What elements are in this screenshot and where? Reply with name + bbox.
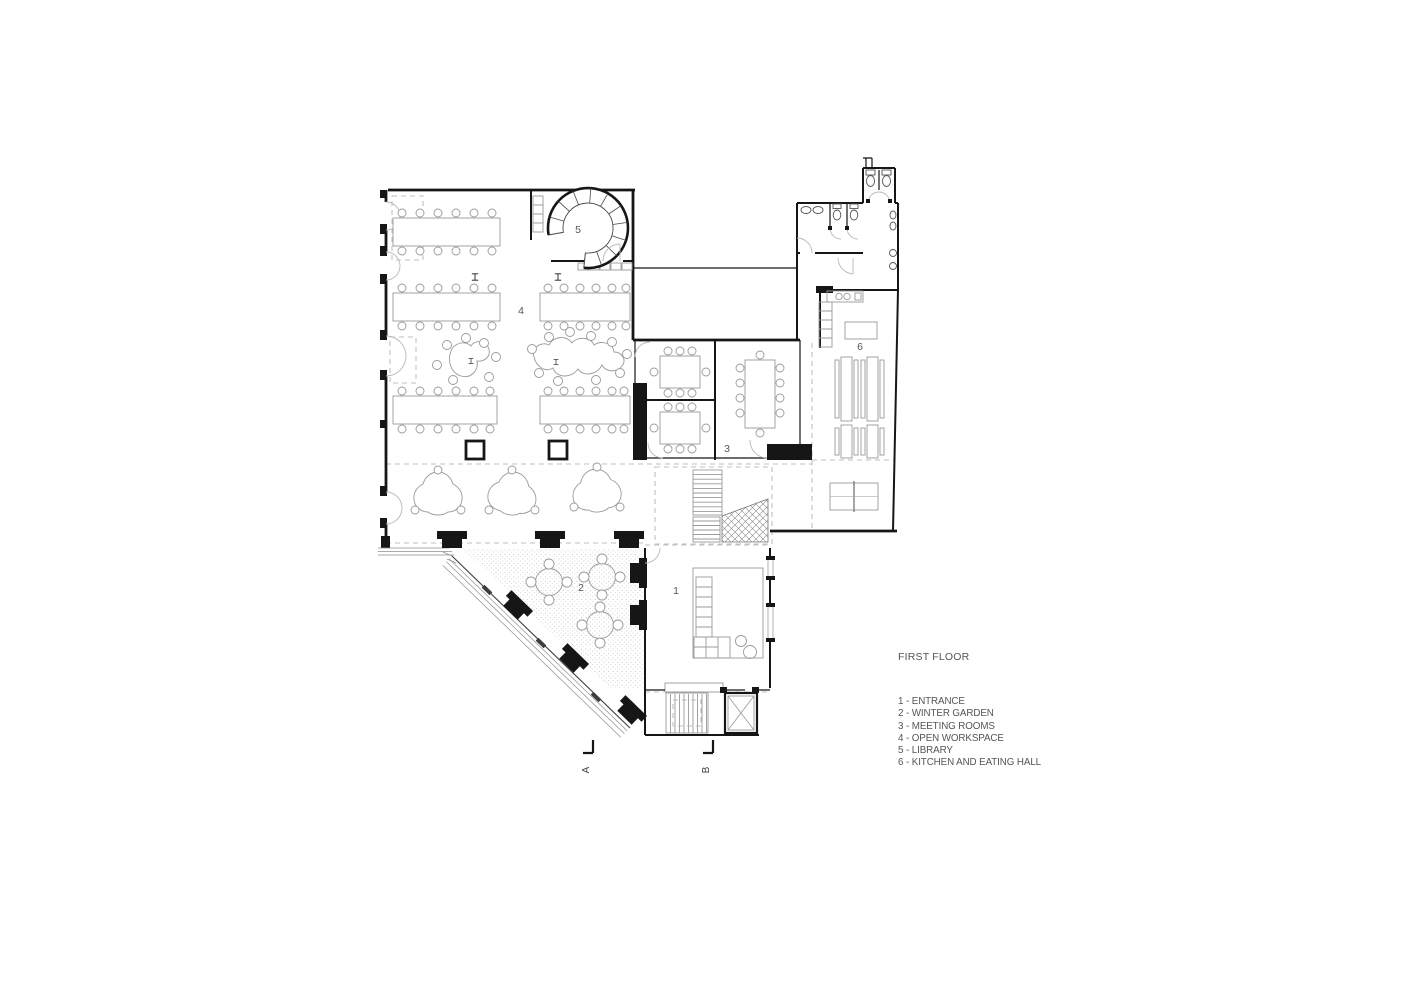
legend-item: 4 - OPEN WORKSPACE: [898, 733, 1138, 745]
column: [549, 441, 567, 459]
room-label-open-workspace: 4: [518, 305, 524, 317]
trefoil-tables: [411, 463, 624, 518]
room-label-meeting-rooms: 3: [724, 443, 730, 455]
section-mark-b: [703, 740, 713, 753]
game-table: [830, 481, 878, 512]
ramp-hatch: [722, 499, 768, 542]
room-label-kitchen: 6: [857, 341, 863, 353]
column: [466, 441, 484, 459]
winter-garden-area: [378, 531, 647, 737]
section-markers: A B: [581, 740, 713, 773]
section-label-b: B: [701, 766, 712, 773]
legend-item: 2 - WINTER GARDEN: [898, 708, 1138, 720]
legend-title: FIRST FLOOR: [898, 651, 1138, 663]
room-label-entrance: 1: [673, 585, 679, 597]
bathrooms-area: [797, 158, 898, 290]
legend-item: 6 - KITCHEN AND EATING HALL: [898, 757, 1138, 769]
legend-item: 5 - LIBRARY: [898, 745, 1138, 757]
kitchen-eating-hall-area: [770, 286, 898, 531]
entry-mat: [665, 683, 723, 692]
legend: FIRST FLOOR 1 - ENTRANCE 2 - WINTER GARD…: [898, 651, 1138, 770]
bench-tables: [835, 357, 884, 458]
legend-item: 1 - ENTRANCE: [898, 696, 1138, 708]
room-label-library: 5: [575, 224, 581, 236]
stipple-floor: [463, 549, 644, 689]
entrance-area: [645, 548, 775, 692]
library-area: [531, 188, 633, 270]
meeting-rooms-area: [633, 340, 812, 460]
elevator: [725, 693, 757, 733]
legend-items: 1 - ENTRANCE 2 - WINTER GARDEN 3 - MEETI…: [898, 696, 1138, 770]
floor-plan-drawing: 1 2 3 4 5 6 A B: [0, 0, 1414, 1000]
floor-plan-page: 1 2 3 4 5 6 A B FIRST FLOOR 1 - ENTRANCE…: [0, 0, 1414, 1000]
section-mark-a: [583, 740, 593, 753]
stair-elevator-block: [645, 687, 770, 735]
room-label-winter-garden: 2: [578, 582, 584, 594]
legend-item: 3 - MEETING ROOMS: [898, 721, 1138, 733]
reception-desk: [693, 568, 763, 659]
central-stair: [693, 470, 768, 542]
section-label-a: A: [581, 766, 592, 773]
